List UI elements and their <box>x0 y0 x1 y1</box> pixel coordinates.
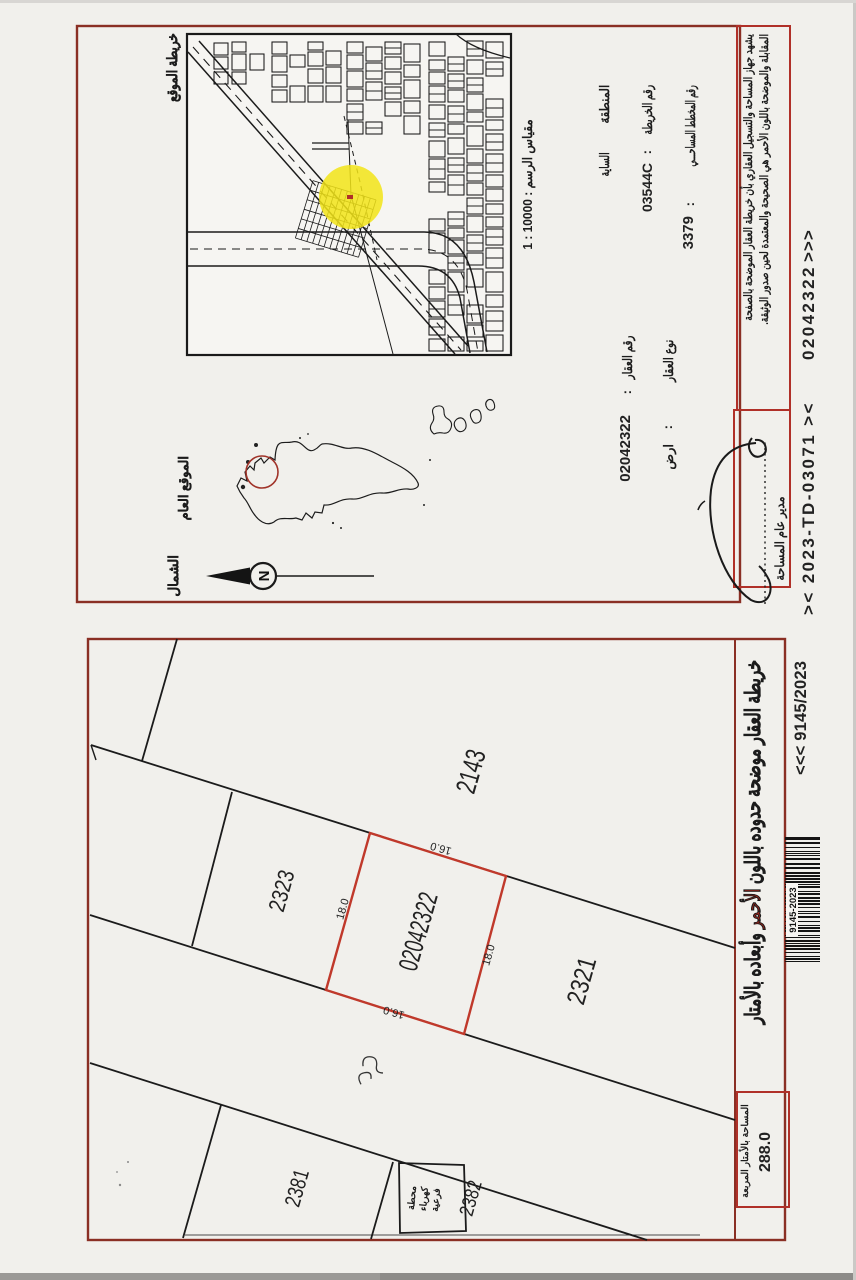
svg-text:16.0: 16.0 <box>382 1003 406 1020</box>
svg-text:02042322: 02042322 <box>393 889 444 974</box>
svg-text:2323: 2323 <box>263 867 300 915</box>
svg-text:2382: 2382 <box>456 1178 487 1219</box>
svg-text:2321: 2321 <box>560 953 602 1007</box>
svg-text:N: N <box>256 571 273 582</box>
svg-text:9145-2023: 9145-2023 <box>788 887 799 932</box>
svg-text:18.0: 18.0 <box>334 897 351 921</box>
svg-text:18.0: 18.0 <box>480 943 497 967</box>
svg-text:16.0: 16.0 <box>429 839 453 856</box>
svg-text:2381: 2381 <box>280 1166 315 1209</box>
svg-text:2143: 2143 <box>450 746 492 797</box>
